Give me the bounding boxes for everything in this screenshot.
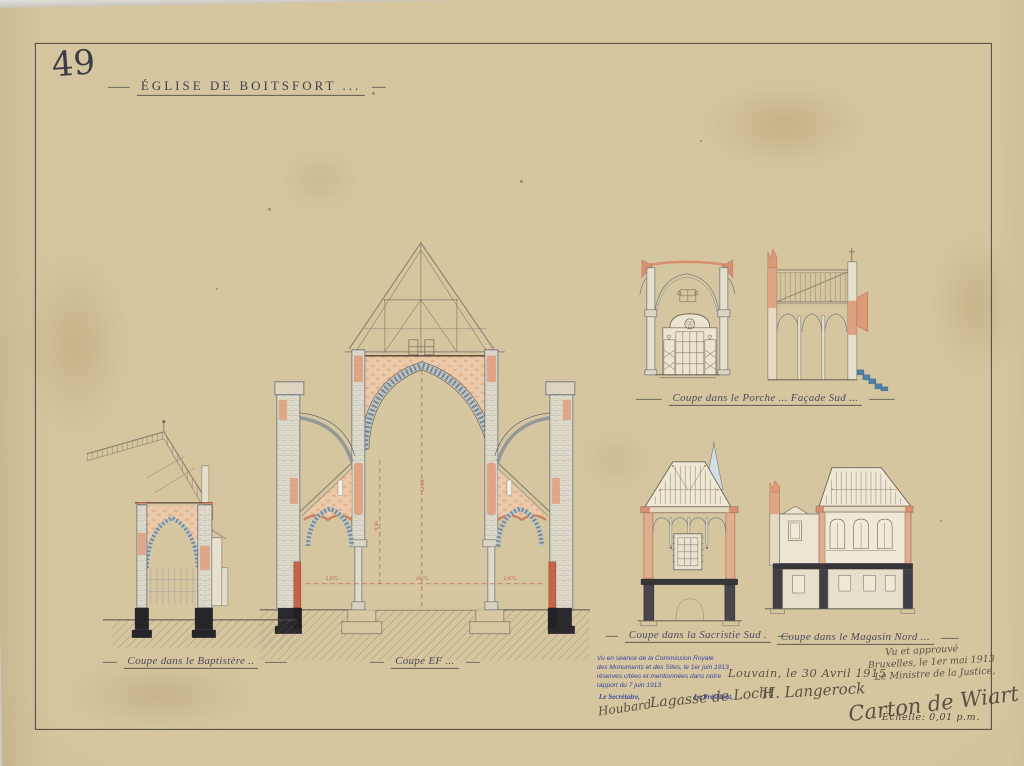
dim-label-left: 5,075 xyxy=(326,576,339,582)
caption-text: Coupe dans la Sacristie Sud . xyxy=(625,629,771,643)
caption-text: Coupe dans le Magasin Nord ... xyxy=(777,631,934,645)
caption-sacristie: Coupe dans la Sacristie Sud . xyxy=(608,629,788,643)
dim-label-right: 5,075 xyxy=(504,576,517,582)
drawing-sacristie xyxy=(638,442,742,627)
title-dash xyxy=(108,86,130,87)
caption-dash xyxy=(941,637,959,638)
caption-text: Coupe dans le Baptistère .. xyxy=(123,655,258,669)
caption-dash xyxy=(370,661,384,662)
stamp-line: Vu en séance de la Commission Royale xyxy=(597,655,739,664)
caption-baptistere: Coupe dans le Baptistère .. xyxy=(85,655,305,669)
drawing-baptistere xyxy=(85,418,300,653)
dim-label-aisle-height: 9,50 xyxy=(374,521,380,531)
stamp-line: réserves citées et mentionnées dans notr… xyxy=(597,673,739,682)
dim-label-center: 10,75 xyxy=(416,576,429,582)
approval-note: Vu et approuvé Bruxelles, le 1er mai 191… xyxy=(867,642,996,684)
paper: 49 Église de Boitsfort ... xyxy=(0,0,1024,766)
dim-label-nave-height: 12,60 xyxy=(420,479,426,492)
caption-dash xyxy=(606,635,618,636)
caption-coupe-ef: Coupe EF ... xyxy=(335,655,515,669)
caption-text: Coupe EF ... xyxy=(391,655,459,669)
scanned-drawing-sheet: 49 Église de Boitsfort ... xyxy=(0,0,1024,766)
caption-dash xyxy=(869,398,895,399)
scale-label: Échelle: 0,01 p.m. xyxy=(882,712,980,723)
caption-magasin: Coupe dans le Magasin Nord ... xyxy=(778,631,958,645)
drawing-porche-coupe xyxy=(758,246,890,391)
city-date-note: Louvain, le 30 Avril 1915 xyxy=(728,666,887,680)
caption-dash xyxy=(102,661,116,662)
sheet-title-text: Église de Boitsfort ... xyxy=(137,78,365,96)
drawing-magasin xyxy=(765,450,913,616)
caption-dash xyxy=(265,661,287,662)
sheet-number: 49 xyxy=(51,42,97,85)
sheet-title: Église de Boitsfort ... xyxy=(108,78,386,96)
caption-porche: Coupe dans le Porche ... Façade Sud ... xyxy=(618,392,913,406)
caption-dash xyxy=(635,398,661,399)
drawing-coupe-ef: 5,075 10,75 5,075 9,50 12,60 xyxy=(260,228,590,665)
stamp-line: des Monuments et des Sites, le 1er juin … xyxy=(597,664,739,673)
caption-dash xyxy=(466,661,480,662)
caption-text: Coupe dans le Porche ... Façade Sud ... xyxy=(668,392,862,406)
title-dash xyxy=(372,86,386,87)
drawing-porche-interieur xyxy=(640,250,735,385)
